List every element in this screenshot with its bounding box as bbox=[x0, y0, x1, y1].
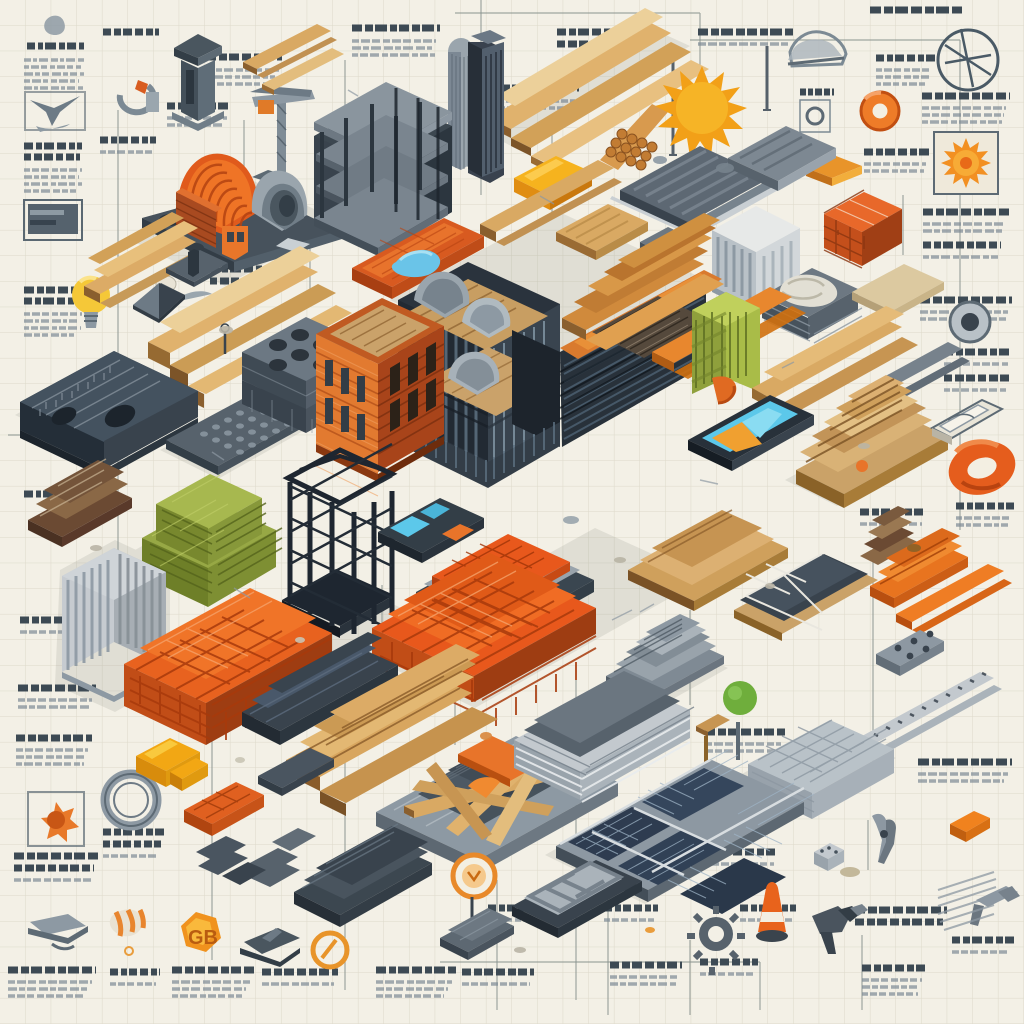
svg-text:GB: GB bbox=[188, 927, 218, 949]
